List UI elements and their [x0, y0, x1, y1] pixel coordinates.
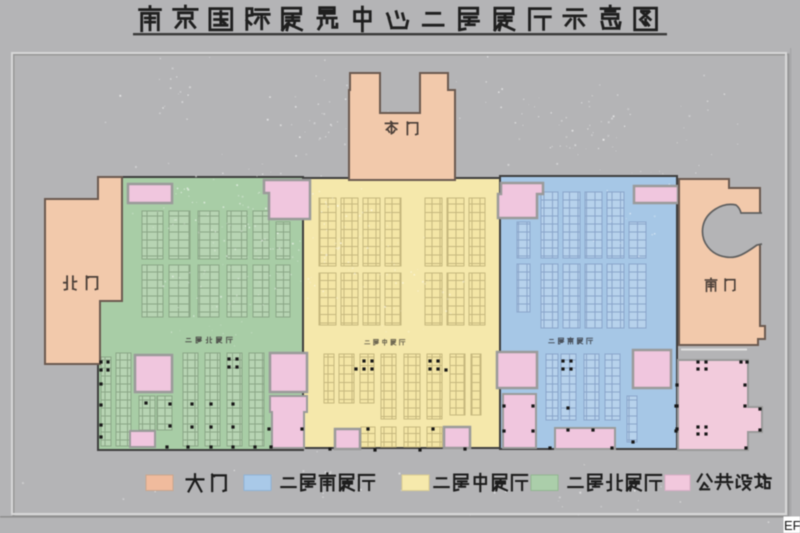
svg-text:EF: EF	[784, 518, 800, 533]
